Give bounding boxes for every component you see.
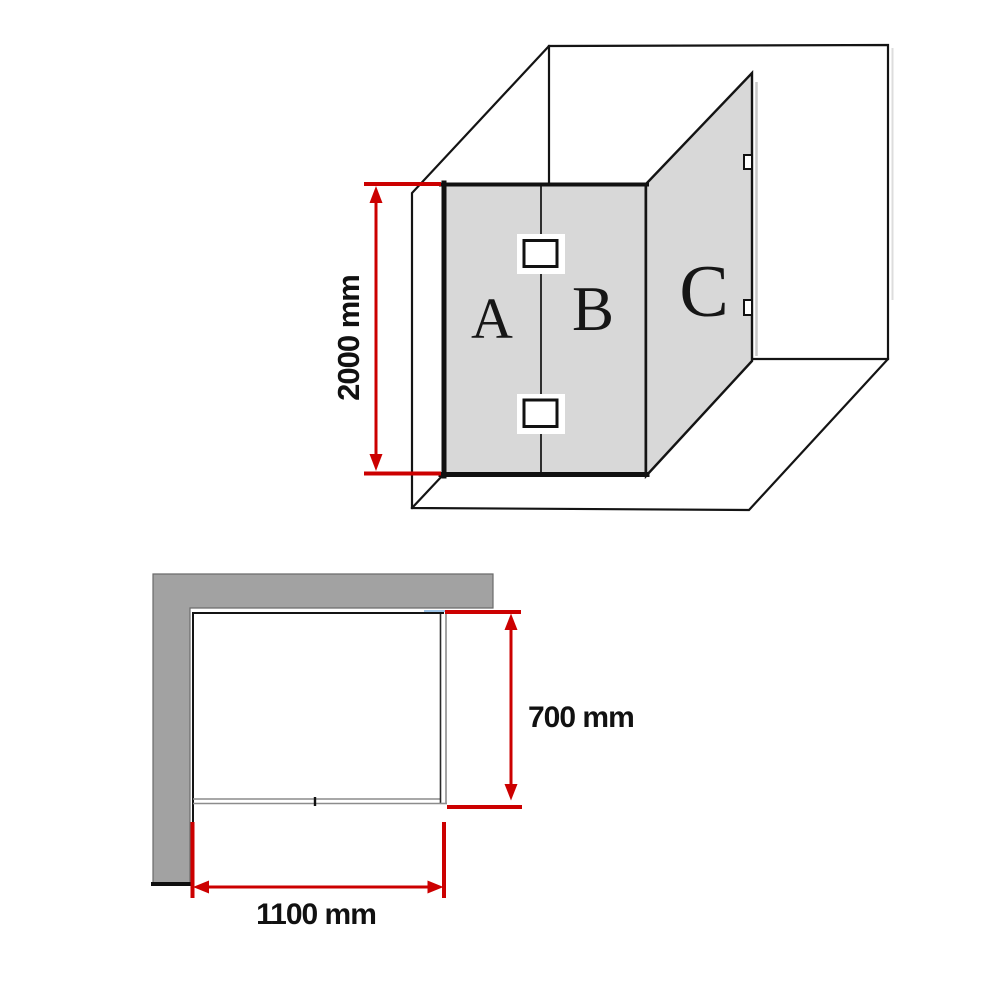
wall-bracket-bottom: [744, 300, 752, 315]
hinge-top-body: [524, 241, 557, 267]
panel-b-label: B: [572, 274, 614, 344]
depth-dim-label: 700 mm: [528, 701, 634, 734]
width-dimension: 1100 mm: [193, 822, 445, 931]
depth-dim-arrow-up: [505, 614, 518, 631]
height-dimension: 2000 mm: [331, 184, 441, 474]
plan-return-glass: [440, 614, 447, 804]
plan-view: 700 mm 1100 mm: [151, 574, 634, 931]
depth-dim-arrow-down: [505, 784, 518, 801]
shower-screen-dimension-diagram: C A B: [0, 0, 1000, 1000]
front-panels: A B: [441, 183, 647, 476]
panel-c: C: [646, 73, 757, 476]
width-dim-label: 1100 mm: [256, 898, 376, 931]
plan-front-glass: [193, 797, 440, 806]
height-dim-arrow-up: [370, 186, 383, 203]
isometric-view: C A B: [331, 45, 893, 510]
height-dim-label: 2000 mm: [331, 275, 366, 401]
wall-bracket-top: [744, 155, 752, 169]
depth-dimension: 700 mm: [445, 612, 634, 807]
width-dim-arrow-left: [193, 881, 209, 894]
diagram-svg: C A B: [0, 0, 1000, 1000]
width-dim-arrow-right: [428, 881, 444, 894]
floor-corner-diagonal-line: [412, 476, 442, 508]
hinge-top: [517, 234, 565, 274]
hinge-bottom-body: [524, 400, 557, 427]
panel-a-label: A: [471, 286, 513, 351]
height-dim-arrow-down: [370, 454, 383, 471]
panel-c-label: C: [679, 251, 728, 333]
hinge-bottom: [517, 394, 565, 434]
